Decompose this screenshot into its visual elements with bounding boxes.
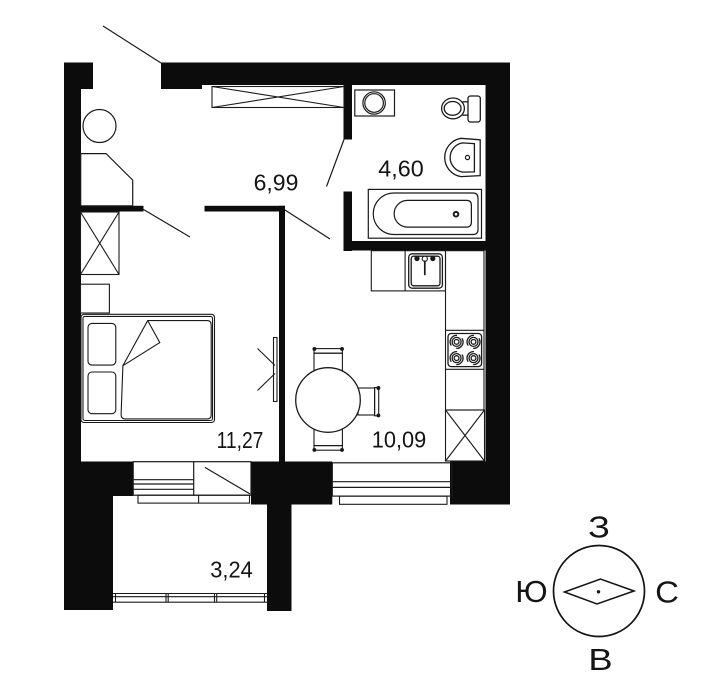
svg-text:С: С <box>655 576 679 610</box>
svg-text:З: З <box>588 511 610 545</box>
svg-text:11,27: 11,27 <box>217 427 264 453</box>
svg-text:3,24: 3,24 <box>210 557 253 583</box>
svg-text:4,60: 4,60 <box>378 155 423 181</box>
svg-text:В: В <box>588 643 612 677</box>
svg-text:10,09: 10,09 <box>372 427 426 453</box>
svg-text:6,99: 6,99 <box>254 170 299 196</box>
svg-text:Ю: Ю <box>515 575 547 609</box>
